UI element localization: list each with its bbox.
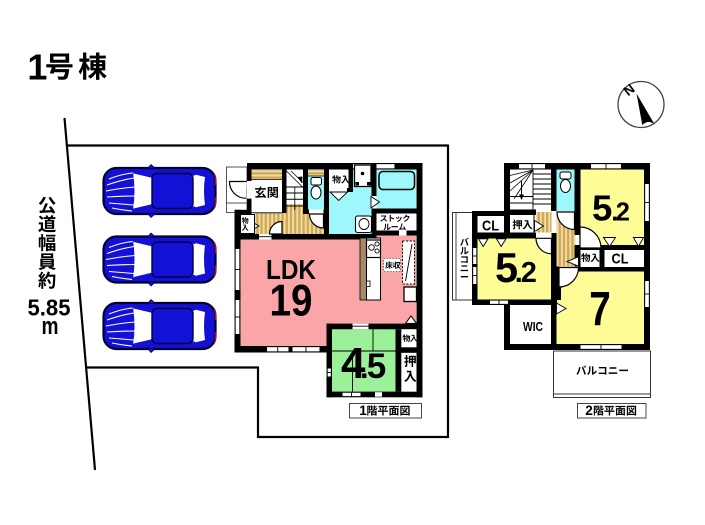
svg-text:2: 2 <box>521 257 537 289</box>
svg-text:7: 7 <box>589 283 611 337</box>
svg-text:m: m <box>42 313 59 340</box>
svg-text:5: 5 <box>592 188 612 229</box>
svg-text:19: 19 <box>270 277 313 326</box>
svg-text:CL: CL <box>612 251 629 268</box>
svg-text:5: 5 <box>367 347 386 386</box>
svg-text:WIC: WIC <box>523 320 543 334</box>
svg-text:1: 1 <box>359 403 367 418</box>
svg-text:CL: CL <box>482 218 499 235</box>
svg-text:2: 2 <box>585 403 593 418</box>
svg-text:1: 1 <box>27 47 47 88</box>
svg-text:2: 2 <box>616 199 630 227</box>
